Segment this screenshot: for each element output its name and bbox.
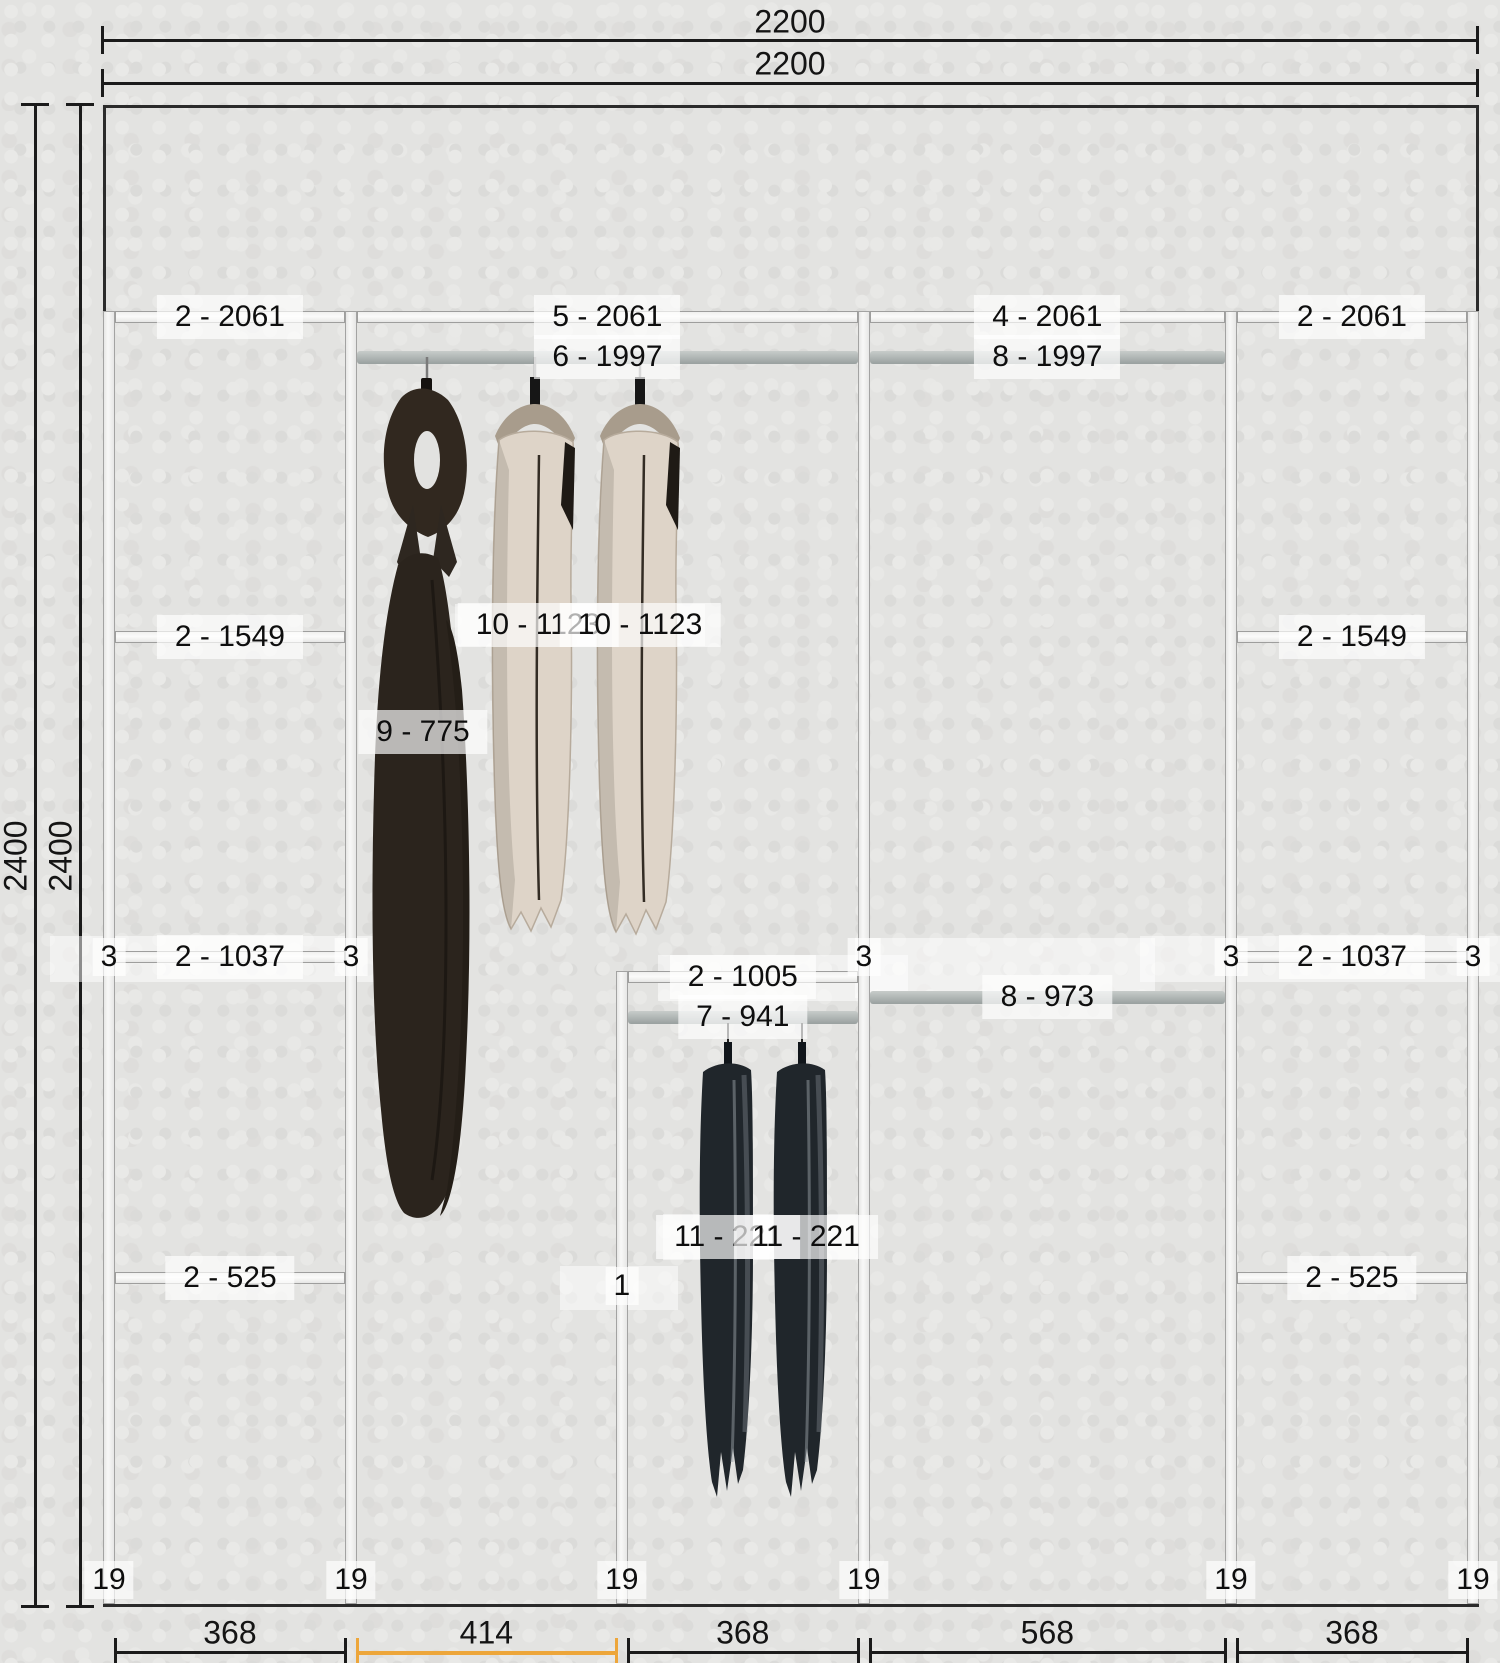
hanging-trousers[interactable] [700, 1023, 753, 1497]
rod-label: 8 - 973 [983, 975, 1112, 1019]
rod-label: 6 - 1997 [534, 335, 680, 379]
panel-number-label: 1 [605, 1267, 638, 1305]
bottom-dim-label: 414 [460, 1615, 513, 1652]
panel-thickness-label: 19 [1448, 1561, 1497, 1599]
panel-number-label: 3 [335, 938, 368, 976]
hanging-trousers[interactable] [774, 1023, 827, 1497]
garment-label: 11 - 221 [734, 1215, 878, 1259]
panel-number-label: 3 [93, 938, 126, 976]
shelf-label: 2 - 2061 [157, 295, 303, 339]
hanging-dress[interactable] [372, 357, 469, 1218]
rod-label: 7 - 941 [678, 995, 807, 1039]
garments-layer [0, 0, 1500, 1663]
bottom-dim-label: 568 [1021, 1615, 1074, 1652]
bottom-dim-label: 368 [716, 1615, 769, 1652]
panel-number-label: 3 [848, 938, 881, 976]
panel-thickness-label: 19 [326, 1561, 375, 1599]
garment-label: 10 - 1123 [560, 603, 721, 647]
shelf-label: 2 - 1037 [157, 935, 303, 979]
shelf-label: 4 - 2061 [974, 295, 1120, 339]
bottom-dim-label: 368 [1325, 1615, 1378, 1652]
panel-thickness-label: 19 [597, 1561, 646, 1599]
shelf-label: 2 - 2061 [1279, 295, 1425, 339]
rod-label: 8 - 1997 [974, 335, 1120, 379]
panel-thickness-label: 19 [1206, 1561, 1255, 1599]
garment-label: 9 - 775 [358, 710, 487, 754]
panel-thickness-label: 19 [84, 1561, 133, 1599]
shelf-label: 2 - 1549 [157, 615, 303, 659]
bottom-dim-label: 368 [203, 1615, 256, 1652]
shelf-label: 2 - 525 [1287, 1256, 1416, 1300]
shelf-label: 2 - 1005 [670, 955, 816, 999]
shelf-label: 2 - 1549 [1279, 615, 1425, 659]
panel-number-label: 3 [1457, 938, 1490, 976]
panel-thickness-label: 19 [839, 1561, 888, 1599]
shelf-label: 2 - 1037 [1279, 935, 1425, 979]
wardrobe-planner-canvas: 2200 2200 2400 2400 [0, 0, 1500, 1663]
panel-number-label: 3 [1215, 938, 1248, 976]
shelf-label: 5 - 2061 [534, 295, 680, 339]
shelf-label: 2 - 525 [165, 1256, 294, 1300]
